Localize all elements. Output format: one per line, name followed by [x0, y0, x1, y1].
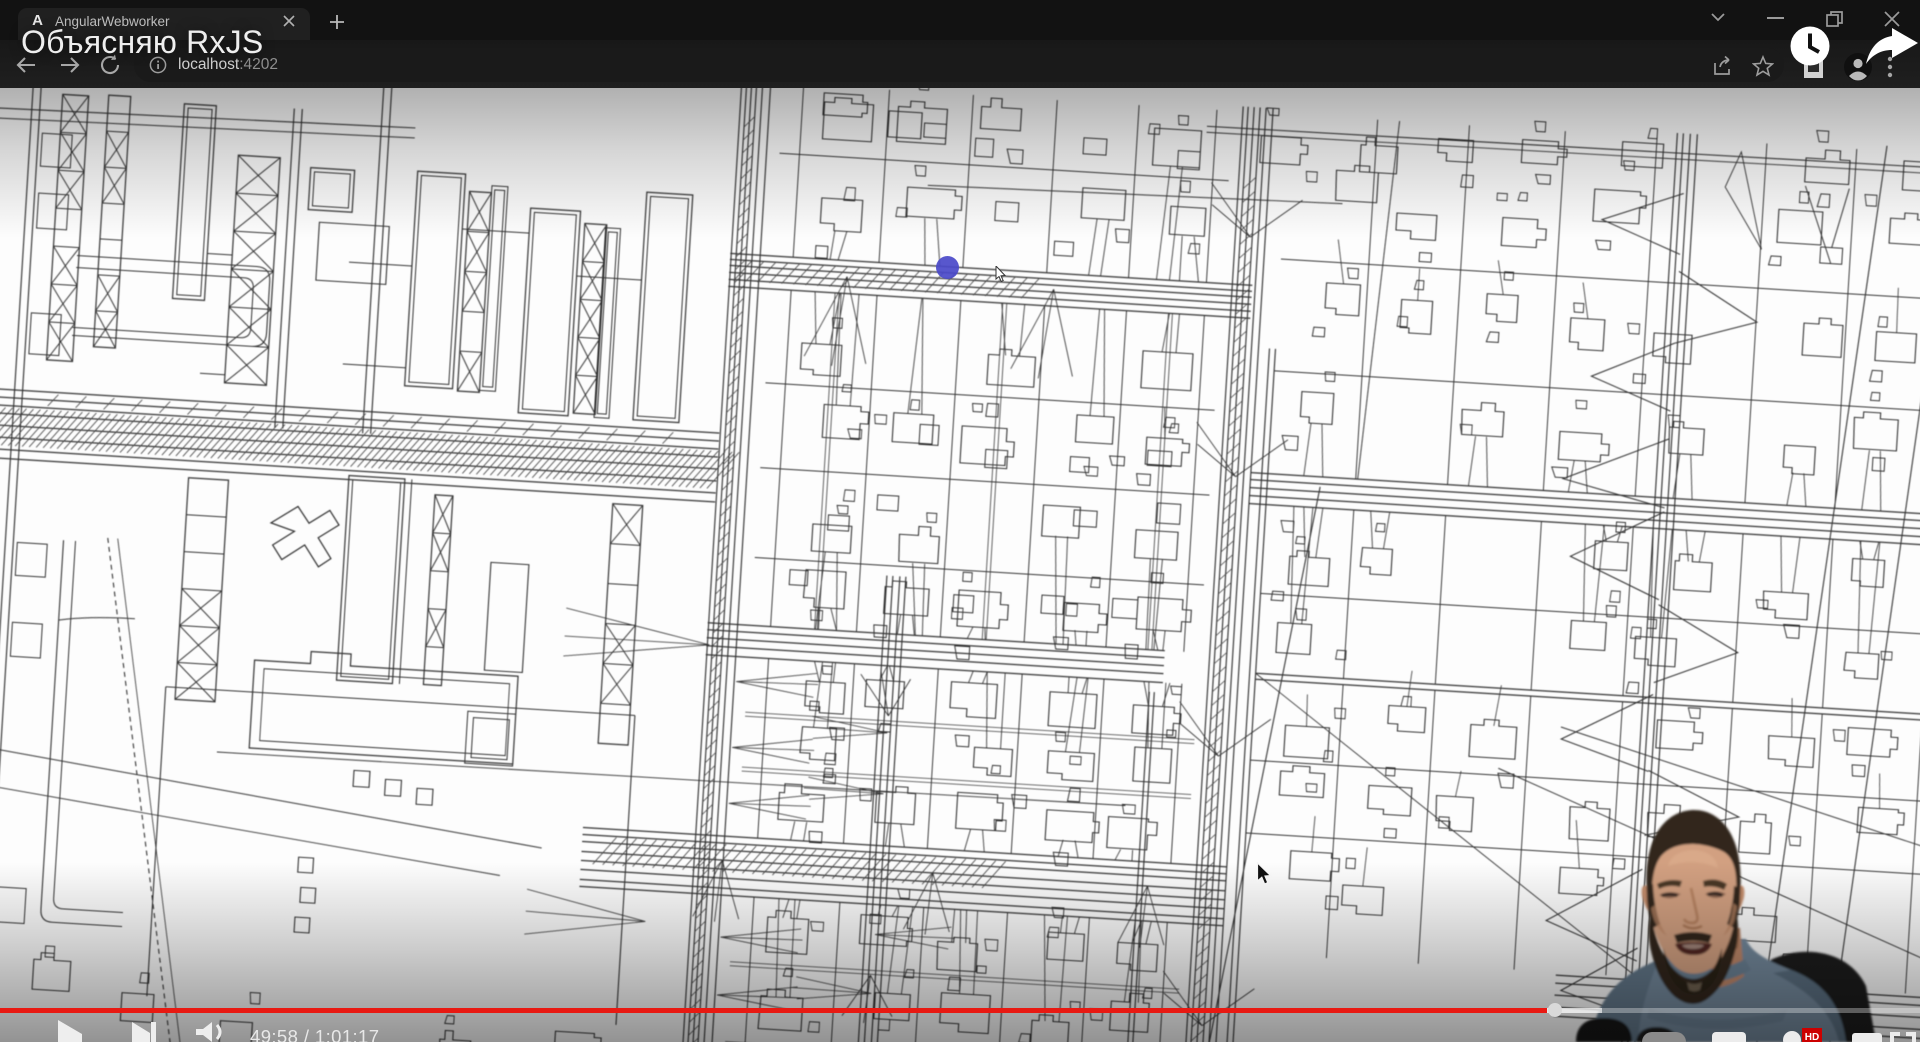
svg-text:HD: HD — [1805, 1032, 1819, 1042]
